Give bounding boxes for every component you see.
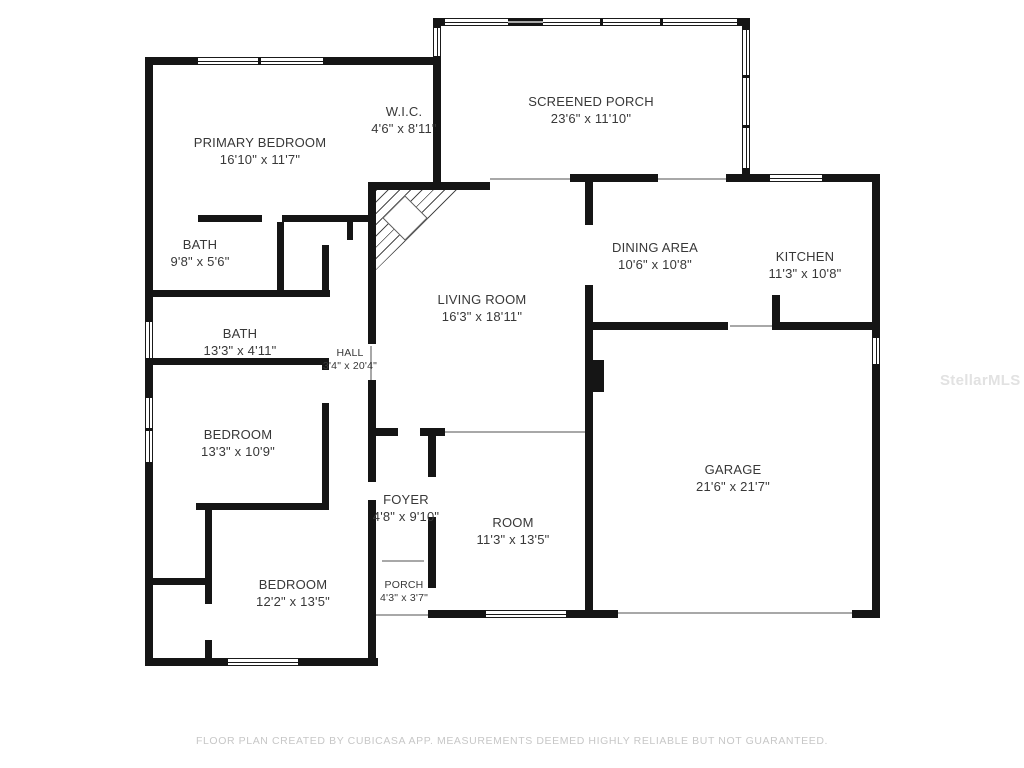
room-dims: 9'8" x 5'6" (170, 253, 229, 270)
room-dims: 11'3" x 10'8" (769, 265, 842, 282)
wall-closet-right-upper (205, 510, 212, 604)
opening-living-porch (490, 178, 570, 180)
room-dims: 4'3" x 3'7" (380, 592, 428, 605)
room-dims: 21'6" x 21'7" (696, 478, 770, 495)
window-screened-porch-top (663, 18, 737, 26)
window-screened-porch-right (742, 78, 750, 125)
wall-wc-divider (277, 222, 284, 290)
room-label-dining-area: DINING AREA 10'6" x 10'8" (612, 239, 698, 273)
wall-kitchen-garage-right (772, 322, 880, 330)
garage-door-line (618, 612, 852, 614)
room-label-kitchen: KITCHEN 11'3" x 10'8" (769, 248, 842, 282)
room-label-bath-1: BATH 9'8" x 5'6" (170, 236, 229, 270)
room-dims: 13'3" x 10'9" (201, 443, 275, 460)
wall-closet-divider (148, 578, 205, 585)
room-name: W.I.C. (371, 103, 437, 120)
wall-porch-right-stub (428, 560, 436, 588)
room-label-room: ROOM 11'3" x 13'5" (477, 514, 550, 548)
window-divider (145, 428, 153, 431)
wall-living-left-upper (368, 182, 376, 344)
room-dims: 11'3" x 13'5" (477, 531, 550, 548)
fireplace-diamond (382, 195, 427, 240)
wall-living-room-top (368, 182, 490, 190)
wall-living-dining-stub (585, 182, 593, 225)
room-label-primary-bedroom: PRIMARY BEDROOM 16'10" x 11'7" (194, 134, 327, 168)
room-dims: 12'2" x 13'5" (256, 593, 330, 610)
fireplace-hatch (376, 190, 458, 270)
room-label-hall: HALL 3'4" x 20'4" (323, 347, 377, 373)
room-name: GARAGE (696, 461, 770, 478)
wall-closet-right-lower (205, 640, 212, 665)
room-name: SCREENED PORCH (528, 93, 654, 110)
footer-disclaimer: FLOOR PLAN CREATED BY CUBICASA APP. MEAS… (0, 735, 1024, 747)
porch-top-opening-line (508, 21, 543, 23)
wall-hall-door-jamb (347, 222, 353, 240)
window-garage (872, 338, 880, 364)
room-dims: 4'8" x 9'10" (373, 508, 439, 525)
window-screened-porch-top (445, 18, 508, 26)
room-name: BEDROOM (256, 576, 330, 593)
window-room (486, 610, 566, 618)
wall-bedroom1-right (322, 403, 329, 510)
wall-living-left-lower (368, 380, 376, 435)
room-name: DINING AREA (612, 239, 698, 256)
room-dims: 23'6" x 11'10" (528, 110, 654, 127)
wall-exterior-right-upper (872, 174, 880, 338)
room-name: BEDROOM (201, 426, 275, 443)
room-label-bedroom-2: BEDROOM 12'2" x 13'5" (256, 576, 330, 610)
wall-garage-bottom-left (592, 610, 618, 618)
water-heater-block (593, 360, 604, 392)
room-name: FOYER (373, 491, 439, 508)
window-porch-left (433, 28, 441, 56)
wall-garage-left (585, 285, 593, 618)
room-dims: 10'6" x 10'8" (612, 256, 698, 273)
room-name: KITCHEN (769, 248, 842, 265)
room-dims: 4'6" x 8'11" (371, 120, 437, 137)
wall-bedroom1-bottom (196, 503, 328, 510)
room-dims: 16'10" x 11'7" (194, 151, 327, 168)
room-name: PRIMARY BEDROOM (194, 134, 327, 151)
watermark: StellarMLS (940, 372, 1021, 389)
wall-dining-top (570, 174, 658, 182)
room-dims: 3'4" x 20'4" (323, 360, 377, 373)
room-name: ROOM (477, 514, 550, 531)
room-label-screened-porch: SCREENED PORCH 23'6" x 11'10" (528, 93, 654, 127)
room-name: LIVING ROOM (438, 291, 527, 308)
room-label-living-room: LIVING ROOM 16'3" x 18'11" (438, 291, 527, 325)
room-name: BATH (204, 325, 277, 342)
opening-kitchen-garage (730, 325, 772, 327)
porch-top-line (382, 560, 424, 562)
wall-dining-top-corner (726, 174, 750, 182)
floor-plan: PRIMARY BEDROOM 16'10" x 11'7" W.I.C. 4'… (0, 0, 1024, 768)
wall-room-bottom-right (566, 610, 592, 618)
window-bedroom2 (228, 658, 298, 666)
wall-room-bottom-left (428, 610, 486, 618)
window-divider (258, 57, 261, 65)
wall-bath2-bottom (145, 358, 325, 365)
room-label-porch: PORCH 4'3" x 3'7" (380, 579, 428, 605)
wall-foyer-top-left (368, 428, 398, 436)
wall-exterior-right-lower (872, 364, 880, 618)
window-screened-porch-top (543, 18, 600, 26)
window-screened-porch-right (742, 30, 750, 75)
window-screened-porch-right (742, 128, 750, 168)
wall-bath1-bottom (145, 290, 330, 297)
room-name: HALL (323, 347, 377, 360)
room-dims: 13'3" x 4'11" (204, 342, 277, 359)
wall-kitchen-stub (772, 295, 780, 330)
opening-room-living (445, 431, 585, 433)
room-label-bedroom-1: BEDROOM 13'3" x 10'9" (201, 426, 275, 460)
wall-bath1-top-left (198, 215, 262, 222)
wall-bedroom-right (368, 560, 376, 666)
room-name: BATH (170, 236, 229, 253)
wall-bath1-top-right (282, 215, 328, 222)
wall-foyer-right-upper (428, 435, 436, 477)
wall-hall-top (328, 215, 368, 222)
room-label-bath-2: BATH 13'3" x 4'11" (204, 325, 277, 359)
opening-dining-porch (658, 178, 726, 180)
window-kitchen (770, 174, 822, 182)
room-label-foyer: FOYER 4'8" x 9'10" (373, 491, 439, 525)
room-label-garage: GARAGE 21'6" x 21'7" (696, 461, 770, 495)
wall-garage-bottom-right (852, 610, 880, 618)
wall-kitchen-garage-left (592, 322, 728, 330)
room-label-wic: W.I.C. 4'6" x 8'11" (371, 103, 437, 137)
wall-foyer-left-upper (368, 435, 376, 482)
wall-hall-left-upper (322, 245, 329, 295)
window-bath2 (145, 322, 153, 358)
window-screened-porch-top (603, 18, 660, 26)
room-dims: 16'3" x 18'11" (438, 308, 527, 325)
porch-bottom-line (376, 614, 428, 616)
room-name: PORCH (380, 579, 428, 592)
